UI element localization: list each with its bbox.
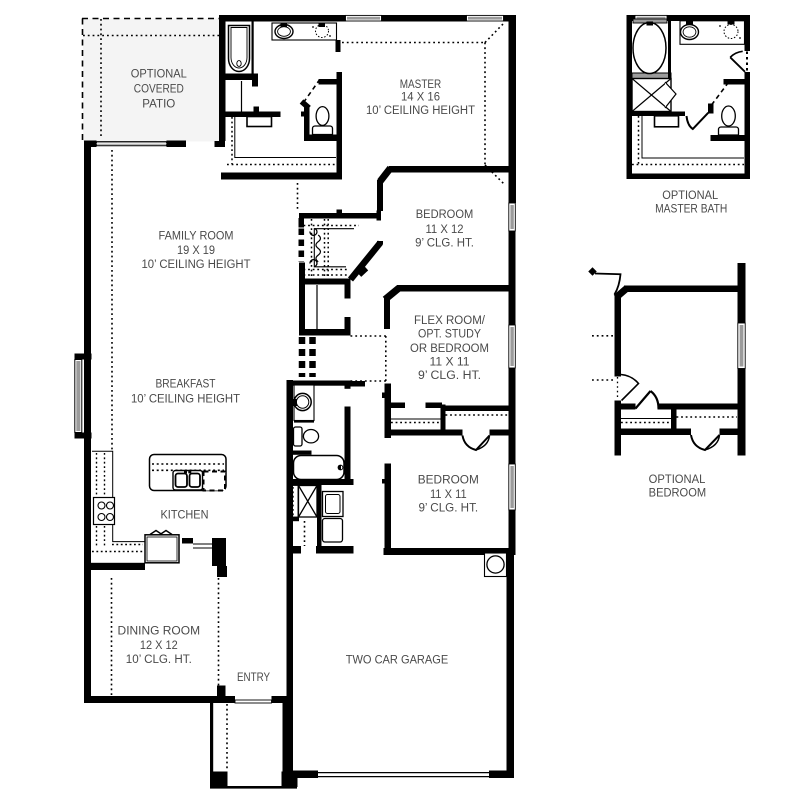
svg-text:OPTIONAL: OPTIONAL — [131, 67, 187, 81]
svg-text:10’ CEILING HEIGHT: 10’ CEILING HEIGHT — [142, 257, 251, 271]
svg-text:TWO CAR GARAGE: TWO CAR GARAGE — [346, 652, 449, 666]
svg-text:10’ CEILING HEIGHT: 10’ CEILING HEIGHT — [366, 103, 475, 117]
svg-text:ENTRY: ENTRY — [237, 670, 270, 684]
svg-text:COVERED: COVERED — [134, 82, 184, 96]
svg-text:9’ CLG. HT.: 9’ CLG. HT. — [415, 236, 474, 250]
svg-text:OPTIONAL: OPTIONAL — [649, 472, 706, 486]
svg-text:11 X 11: 11 X 11 — [430, 487, 467, 501]
svg-text:OPTIONAL: OPTIONAL — [662, 188, 718, 202]
svg-text:BREAKFAST: BREAKFAST — [156, 377, 216, 391]
svg-text:11 X 12: 11 X 12 — [426, 222, 464, 236]
svg-text:OPT. STUDY: OPT. STUDY — [418, 327, 481, 341]
svg-text:FAMILY ROOM: FAMILY ROOM — [159, 229, 234, 243]
svg-text:9’ CLG. HT.: 9’ CLG. HT. — [418, 368, 481, 382]
svg-text:DINING ROOM: DINING ROOM — [118, 624, 201, 638]
svg-text:OR BEDROOM: OR BEDROOM — [410, 341, 489, 355]
svg-text:PATIO: PATIO — [142, 97, 175, 111]
svg-text:12 X 12: 12 X 12 — [140, 638, 178, 652]
svg-text:11 X 11: 11 X 11 — [430, 355, 470, 369]
svg-text:10’ CLG. HT.: 10’ CLG. HT. — [126, 652, 192, 666]
svg-text:MASTER BATH: MASTER BATH — [655, 202, 727, 216]
svg-text:9’ CLG. HT.: 9’ CLG. HT. — [418, 501, 478, 515]
svg-text:FLEX ROOM/: FLEX ROOM/ — [414, 313, 486, 327]
svg-text:BEDROOM: BEDROOM — [649, 486, 707, 500]
svg-text:14 X 16: 14 X 16 — [401, 90, 440, 104]
svg-text:10’ CEILING HEIGHT: 10’ CEILING HEIGHT — [131, 392, 240, 406]
svg-text:KITCHEN: KITCHEN — [161, 508, 209, 522]
svg-text:19 X 19: 19 X 19 — [177, 243, 215, 257]
svg-text:BEDROOM: BEDROOM — [416, 207, 474, 221]
svg-text:BEDROOM: BEDROOM — [418, 472, 479, 486]
